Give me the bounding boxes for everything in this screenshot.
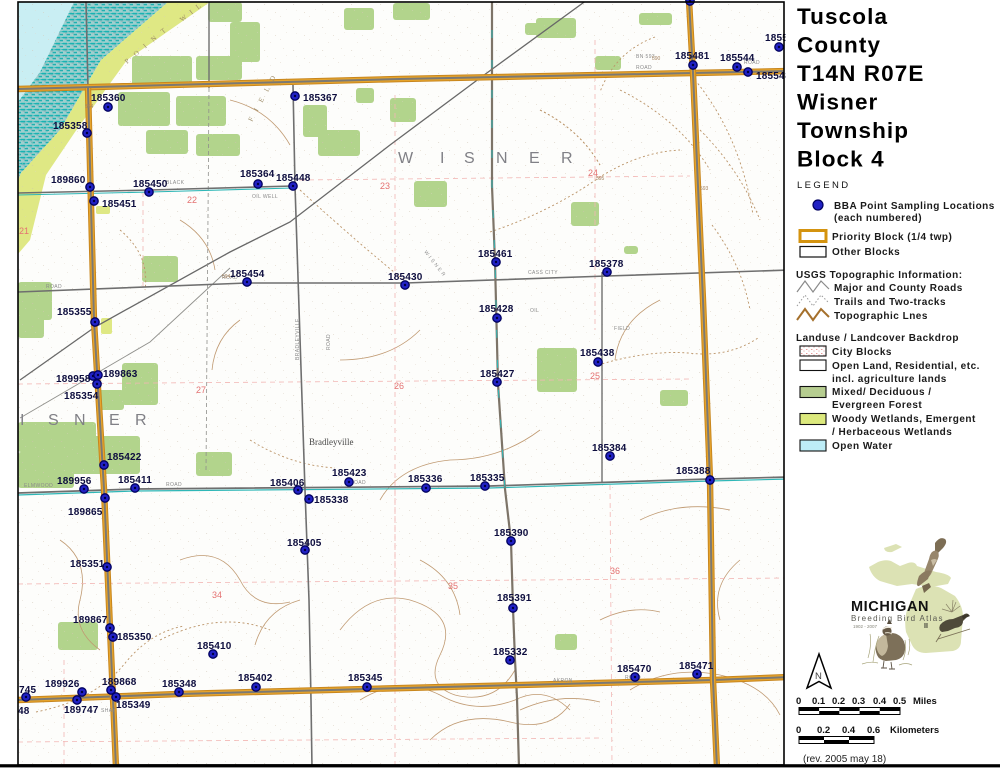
svg-text:36: 36	[610, 566, 620, 576]
svg-text:LEGEND: LEGEND	[797, 180, 850, 191]
svg-text:189926: 189926	[45, 679, 80, 690]
svg-text:S: S	[48, 412, 59, 429]
svg-text:City Blocks: City Blocks	[832, 347, 892, 358]
svg-text:W: W	[398, 150, 414, 167]
svg-text:BLACK: BLACK	[166, 180, 185, 186]
svg-text:Township: Township	[797, 118, 909, 143]
svg-text:0.3: 0.3	[852, 696, 865, 707]
svg-text:185410: 185410	[197, 641, 232, 652]
svg-text:185350: 185350	[117, 632, 152, 643]
svg-text:185354: 185354	[64, 391, 99, 402]
svg-text:185423: 185423	[332, 468, 367, 479]
svg-text:185355: 185355	[57, 307, 92, 318]
svg-text:Block 4: Block 4	[797, 147, 885, 172]
svg-text:Other Blocks: Other Blocks	[832, 247, 900, 258]
svg-text:189868: 189868	[102, 677, 137, 688]
svg-text:185335: 185335	[470, 473, 505, 484]
svg-text:ROAD: ROAD	[636, 65, 652, 71]
svg-text:189867: 189867	[73, 615, 108, 626]
svg-text:185428: 185428	[479, 304, 514, 315]
svg-text:(each numbered): (each numbered)	[834, 213, 922, 224]
svg-text:0: 0	[796, 696, 801, 707]
svg-text:N: N	[496, 150, 508, 167]
svg-text:185336: 185336	[408, 474, 443, 485]
svg-text:ROAD: ROAD	[166, 482, 182, 488]
svg-text:Wisner: Wisner	[797, 90, 878, 115]
svg-text:ROAD: ROAD	[326, 334, 332, 350]
svg-text:CASS CITY: CASS CITY	[528, 270, 558, 276]
svg-text:E: E	[109, 412, 120, 429]
svg-text:T14N R07E: T14N R07E	[797, 61, 924, 86]
svg-text:185367: 185367	[303, 93, 338, 104]
svg-text:0.4: 0.4	[873, 696, 887, 707]
svg-text:(rev. 2005 may 18): (rev. 2005 may 18)	[803, 754, 886, 765]
svg-text:185544: 185544	[720, 53, 755, 64]
svg-text:35: 35	[448, 581, 458, 591]
svg-text:185454: 185454	[230, 269, 265, 280]
svg-text:OIL WELL: OIL WELL	[252, 194, 278, 200]
svg-text:Mixed/ Deciduous /: Mixed/ Deciduous /	[832, 387, 932, 398]
svg-text:0.5: 0.5	[893, 696, 907, 707]
svg-text:185345: 185345	[348, 673, 383, 684]
svg-text:189747: 189747	[64, 705, 99, 716]
svg-text:Miles: Miles	[913, 696, 937, 707]
svg-text:AKRON: AKRON	[553, 678, 573, 684]
svg-text:0.4: 0.4	[842, 725, 856, 736]
svg-text:189860: 189860	[51, 175, 86, 186]
svg-text:0: 0	[796, 725, 801, 736]
svg-text:185332: 185332	[493, 647, 528, 658]
svg-text:185360: 185360	[91, 93, 126, 104]
svg-text:S: S	[464, 150, 475, 167]
svg-text:0.6: 0.6	[867, 725, 880, 736]
svg-text:0.1: 0.1	[812, 696, 826, 707]
svg-text:185364: 185364	[240, 169, 275, 180]
svg-text:Priority Block (1/4 twp): Priority Block (1/4 twp)	[832, 232, 952, 243]
svg-text:Kilometers: Kilometers	[890, 725, 939, 736]
svg-text:Evergreen Forest: Evergreen Forest	[832, 400, 922, 411]
svg-text:23: 23	[380, 181, 390, 191]
svg-text:595: 595	[596, 176, 605, 182]
svg-text:185471: 185471	[679, 661, 714, 672]
svg-text:26: 26	[394, 381, 404, 391]
svg-text:N: N	[815, 671, 822, 682]
svg-text:Woody Wetlands, Emergent: Woody Wetlands, Emergent	[832, 414, 976, 425]
svg-text:185411: 185411	[118, 475, 152, 486]
svg-text:185348: 185348	[162, 679, 197, 690]
svg-text:185481: 185481	[675, 51, 710, 62]
svg-text:590: 590	[652, 56, 661, 62]
svg-text:Open Water: Open Water	[832, 441, 893, 452]
svg-text:27: 27	[196, 385, 206, 395]
svg-text:Topographic Lnes: Topographic Lnes	[834, 311, 928, 322]
svg-text:USGS Topographic Information:: USGS Topographic Information:	[796, 270, 963, 281]
svg-text:564: 564	[85, 104, 94, 110]
svg-text:E: E	[529, 150, 540, 167]
svg-text:189958: 189958	[56, 374, 91, 385]
svg-text:189865: 189865	[68, 507, 103, 518]
svg-text:25: 25	[590, 371, 600, 381]
svg-text:593: 593	[700, 186, 709, 192]
svg-text:II: II	[924, 623, 928, 630]
svg-text:185351: 185351	[70, 559, 105, 570]
svg-text:185427: 185427	[480, 369, 515, 380]
svg-text:Tuscola: Tuscola	[797, 4, 888, 29]
svg-text:189863: 189863	[103, 369, 138, 380]
svg-text:R: R	[561, 150, 573, 167]
svg-text:185422: 185422	[107, 452, 142, 463]
svg-text:Breeding Bird Atlas: Breeding Bird Atlas	[851, 614, 944, 623]
svg-text:185430: 185430	[388, 272, 423, 283]
svg-text:R: R	[135, 412, 147, 429]
svg-text:185470: 185470	[617, 664, 652, 675]
svg-text:185384: 185384	[592, 443, 627, 454]
svg-text:Trails and Two-tracks: Trails and Two-tracks	[834, 297, 946, 308]
svg-text:185450: 185450	[133, 179, 168, 190]
svg-text:21: 21	[19, 226, 29, 236]
svg-text:I: I	[440, 150, 444, 167]
svg-text:Bradleyville: Bradleyville	[309, 437, 354, 447]
svg-text:BBA Point Sampling Locations: BBA Point Sampling Locations	[834, 201, 995, 212]
svg-text:185402: 185402	[238, 673, 273, 684]
svg-text:BRADLEYVILLE: BRADLEYVILLE	[295, 318, 301, 360]
svg-text:SHAY: SHAY	[101, 708, 116, 714]
svg-text:185338: 185338	[314, 495, 349, 506]
svg-text:185406: 185406	[270, 478, 305, 489]
svg-text:48: 48	[18, 706, 30, 717]
svg-text:FIELD: FIELD	[614, 326, 630, 332]
svg-text:N: N	[74, 412, 86, 429]
svg-text:MICHIGAN: MICHIGAN	[851, 599, 929, 615]
svg-text:Landuse / Landcover Backdrop: Landuse / Landcover Backdrop	[796, 333, 959, 344]
svg-text:185390: 185390	[494, 528, 529, 539]
svg-text:185461: 185461	[478, 249, 513, 260]
svg-text:County: County	[797, 33, 881, 58]
svg-text:/ Herbaceous Wetlands: / Herbaceous Wetlands	[832, 427, 952, 438]
svg-text:ROAD: ROAD	[46, 284, 62, 290]
svg-text:I: I	[20, 412, 24, 429]
svg-text:745: 745	[19, 685, 37, 696]
svg-text:185388: 185388	[676, 466, 711, 477]
svg-text:ELMWOOD: ELMWOOD	[24, 483, 53, 489]
svg-text:185378: 185378	[589, 259, 624, 270]
svg-text:185349: 185349	[116, 700, 151, 711]
svg-text:185451: 185451	[102, 199, 137, 210]
svg-text:Major and County Roads: Major and County Roads	[834, 283, 963, 294]
svg-text:185358: 185358	[53, 121, 88, 132]
svg-text:Open Land, Residential, etc.: Open Land, Residential, etc.	[832, 361, 980, 372]
svg-text:incl. agriculture lands: incl. agriculture lands	[832, 374, 947, 385]
svg-text:0.2: 0.2	[832, 696, 845, 707]
svg-text:185405: 185405	[287, 538, 322, 549]
svg-text:1902 - 2007: 1902 - 2007	[853, 624, 878, 629]
svg-text:34: 34	[212, 590, 222, 600]
svg-text:0.2: 0.2	[817, 725, 830, 736]
svg-text:185391: 185391	[497, 593, 532, 604]
svg-text:185438: 185438	[580, 348, 615, 359]
svg-text:189956: 189956	[57, 476, 92, 487]
svg-text:185448: 185448	[276, 173, 311, 184]
svg-text:OIL: OIL	[530, 308, 539, 314]
svg-text:22: 22	[187, 195, 197, 205]
